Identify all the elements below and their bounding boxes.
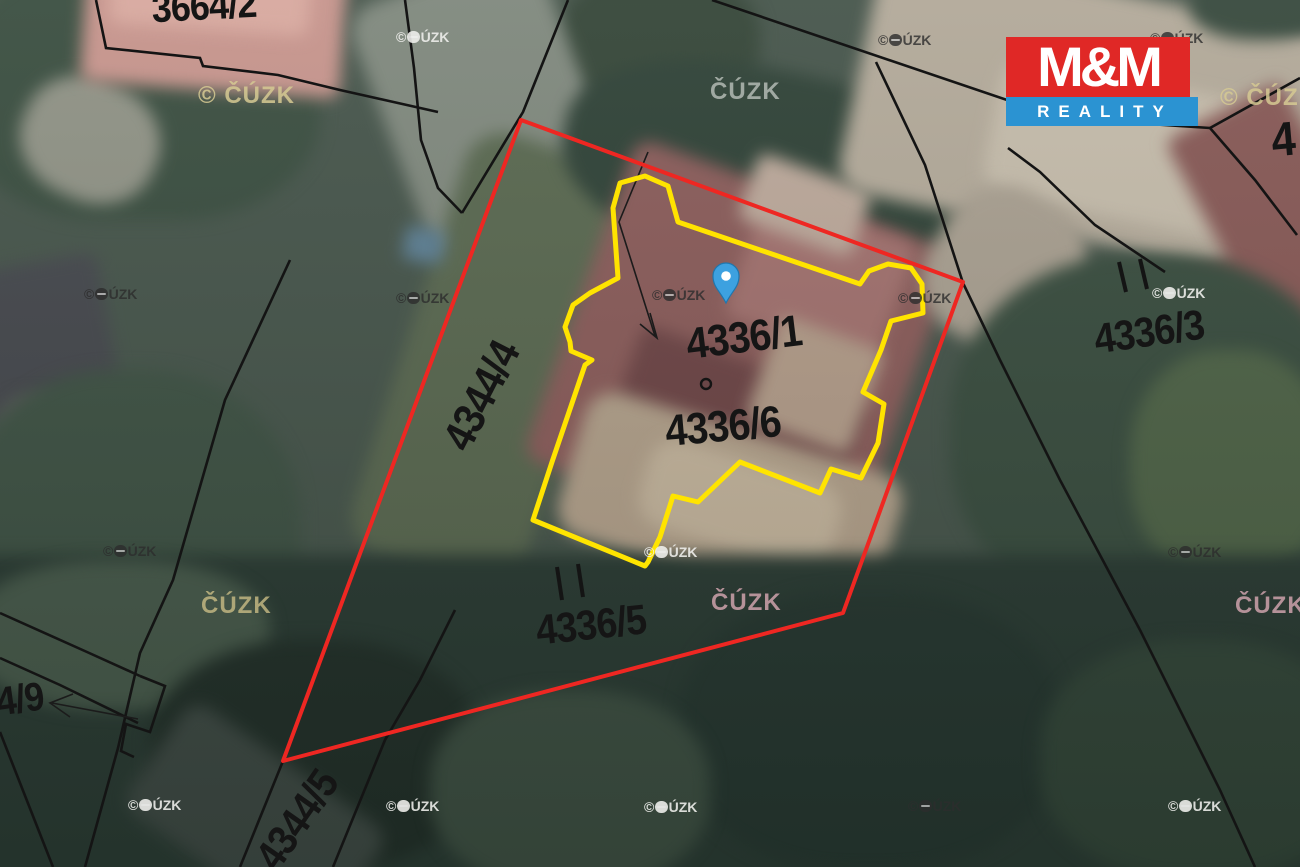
cuzk-watermark: ©ÚZK — [128, 798, 181, 812]
map-canvas[interactable]: 3664/2 4344/4 4336/1 4336/6 4336/3 4336/… — [0, 0, 1300, 867]
parcel-label-4336-6: 4336/6 — [663, 397, 783, 457]
cuzk-watermark: ©ÚZK — [396, 30, 449, 44]
globe-icon — [889, 34, 902, 47]
mm-reality-logo: M&M REALITY — [1006, 37, 1198, 126]
logo-top-box: M&M — [1006, 37, 1190, 97]
parcel-label-3664-2: 3664/2 — [151, 0, 258, 32]
cadastre-line — [333, 610, 455, 867]
globe-icon — [1179, 800, 1192, 813]
cuzk-watermark: ©ÚZK — [1152, 286, 1205, 300]
globe-icon — [919, 800, 932, 813]
tick-mark — [557, 567, 562, 600]
cuzk-watermark: ©ÚZK — [908, 799, 961, 813]
globe-icon — [397, 800, 410, 813]
cuzk-watermark-large: ČÚZK — [1235, 594, 1300, 618]
cuzk-watermark: ©ÚZK — [1168, 545, 1221, 559]
globe-icon — [1179, 546, 1192, 559]
cuzk-watermark: ©ÚZK — [644, 800, 697, 814]
globe-icon — [655, 801, 668, 814]
pin-hole — [721, 271, 731, 281]
cadastre-line — [462, 0, 568, 213]
parcel-label-4-9: 4/9 — [0, 674, 47, 725]
location-pin-icon — [713, 263, 739, 303]
building-yellow-outline — [533, 176, 923, 566]
cuzk-watermark: ©ÚZK — [1168, 799, 1221, 813]
globe-icon — [139, 799, 152, 812]
cuzk-watermark: ©ÚZK — [386, 799, 439, 813]
globe-icon — [95, 288, 108, 301]
globe-icon — [909, 292, 922, 305]
cuzk-watermark-large: © ČÚZK — [1220, 86, 1300, 110]
cadastre-line — [963, 283, 1255, 867]
globe-icon — [1163, 287, 1176, 300]
globe-icon — [655, 546, 668, 559]
leader-arrow-4-9 — [52, 703, 138, 719]
tick-mark — [1119, 262, 1126, 292]
globe-icon — [407, 292, 420, 305]
globe-icon — [407, 31, 420, 44]
cuzk-watermark-large: ČÚZK — [201, 594, 272, 618]
cuzk-watermark-large: ČÚZK — [710, 80, 781, 104]
building-centroid-symbol — [701, 379, 711, 389]
cuzk-watermark-large: ČÚZK — [711, 591, 782, 615]
cadastre-line — [876, 62, 963, 283]
parcel-label-edge-right: 4 — [1269, 112, 1297, 169]
pin-body — [713, 263, 739, 303]
cuzk-watermark: ©ÚZK — [898, 291, 951, 305]
tick-mark — [1140, 259, 1147, 289]
cadastre-overlay — [0, 0, 1300, 867]
cadastre-line — [1008, 148, 1165, 272]
cuzk-watermark-large: © ČÚZK — [198, 84, 295, 108]
cuzk-watermark: ©ÚZK — [396, 291, 449, 305]
cuzk-watermark: ©ÚZK — [644, 545, 697, 559]
cuzk-watermark: ©ÚZK — [84, 287, 137, 301]
logo-bottom-box: REALITY — [1006, 97, 1198, 126]
tick-mark — [578, 564, 583, 597]
selected-parcel-red-boundary — [283, 120, 963, 761]
cuzk-watermark: ©ÚZK — [652, 288, 705, 302]
globe-icon — [663, 289, 676, 302]
globe-icon — [114, 545, 127, 558]
cadastre-line — [0, 732, 53, 867]
cuzk-watermark: ©ÚZK — [103, 544, 156, 558]
cuzk-watermark: ©ÚZK — [878, 33, 931, 47]
cadastre-lines — [0, 0, 1300, 867]
cadastre-line — [85, 260, 290, 867]
